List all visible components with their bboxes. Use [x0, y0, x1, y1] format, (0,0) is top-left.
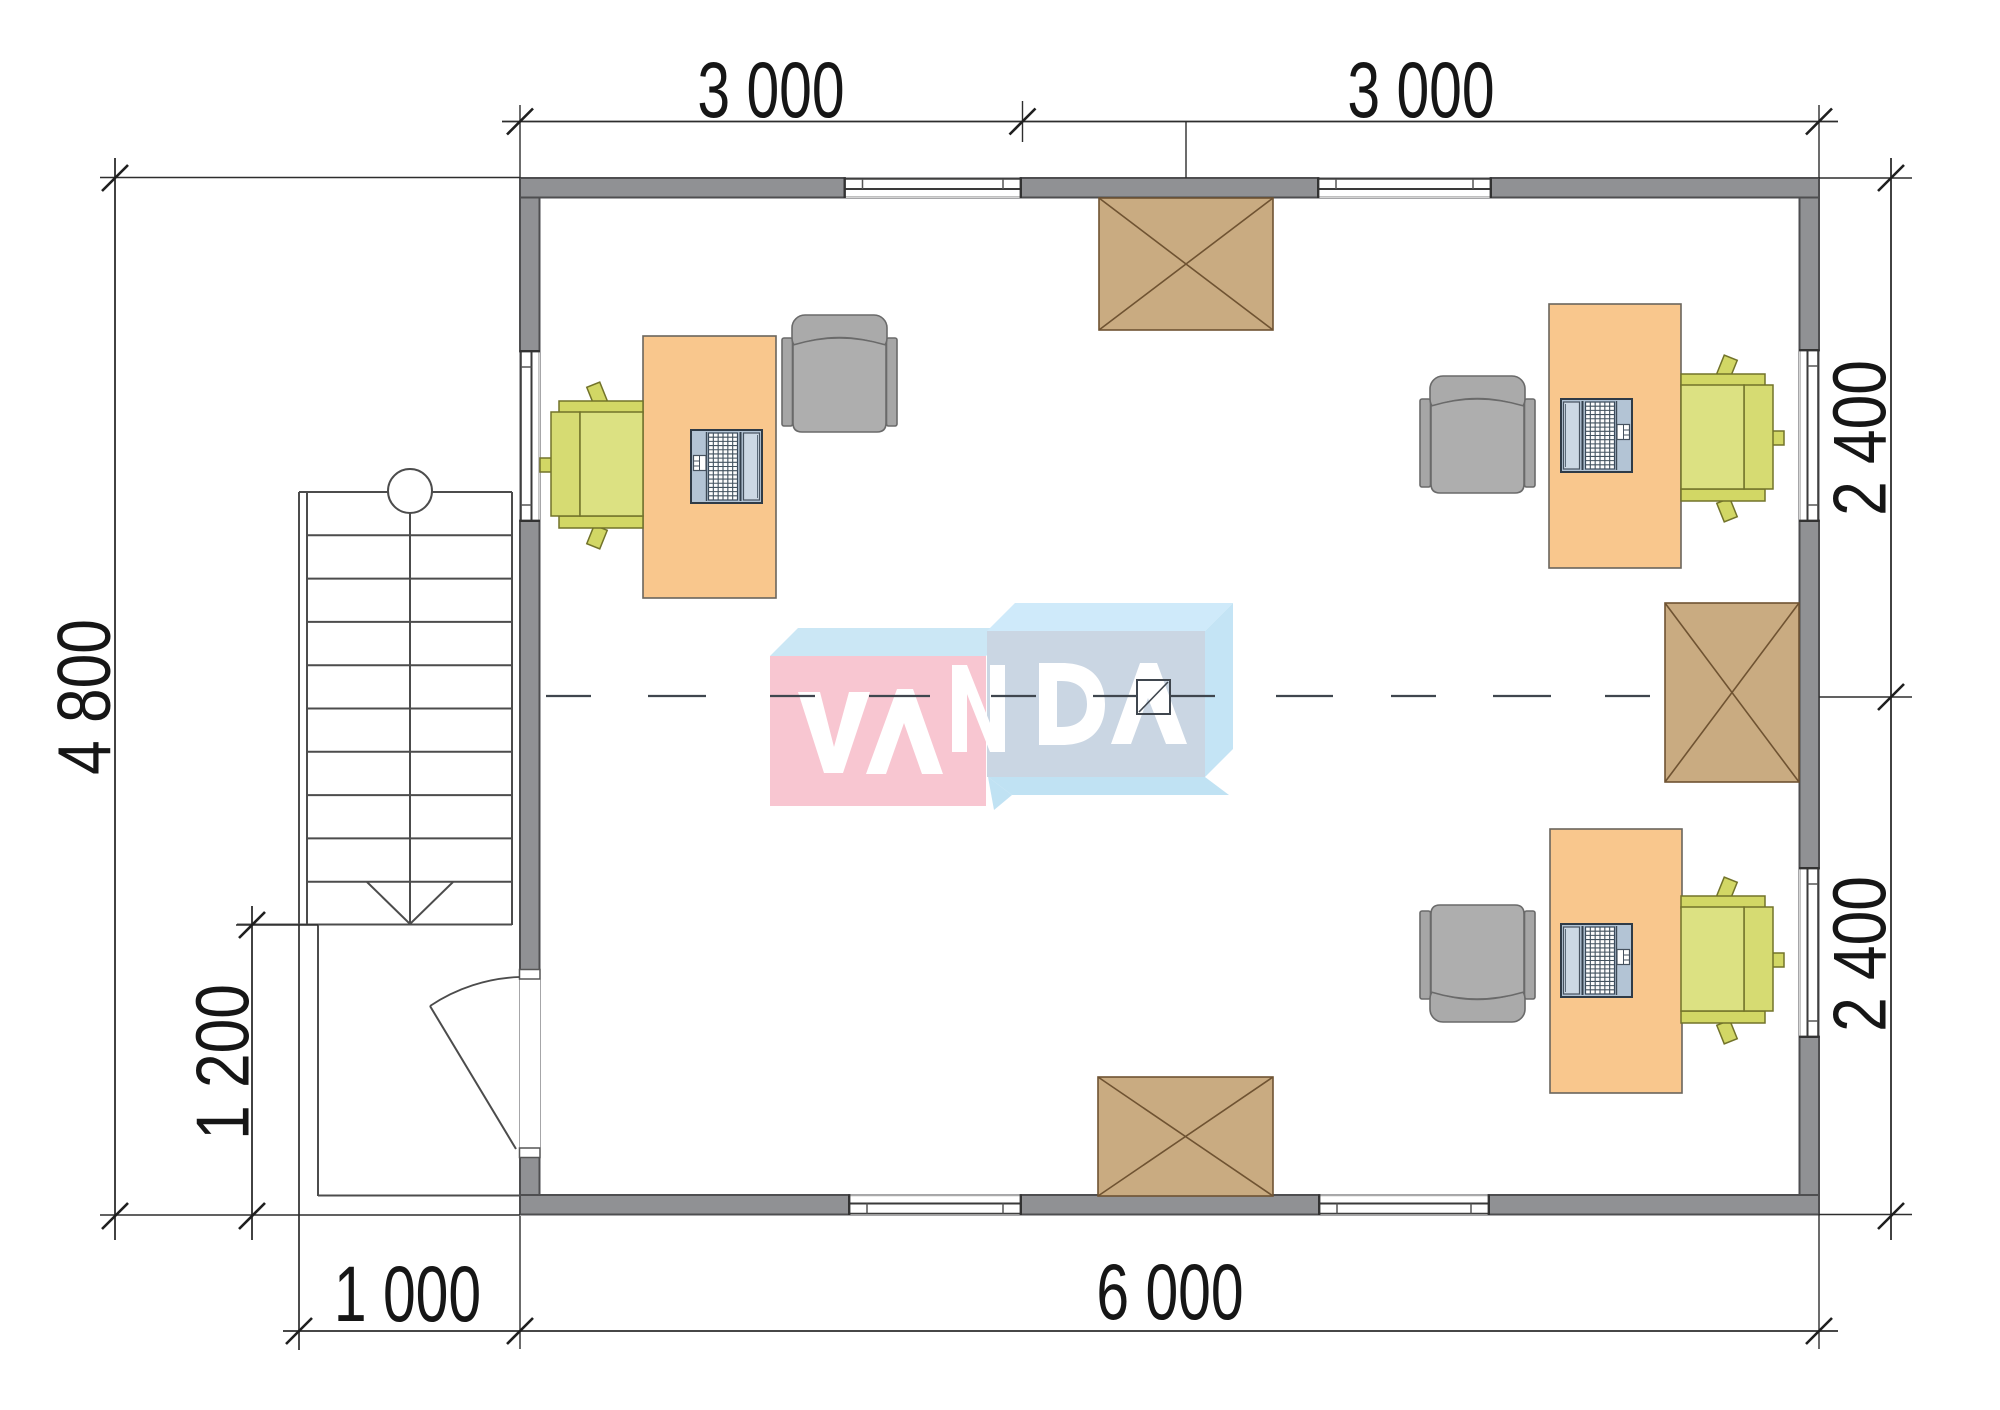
svg-text:3 000: 3 000: [697, 46, 844, 134]
svg-text:3 000: 3 000: [1347, 46, 1494, 134]
svg-text:1 000: 1 000: [334, 1250, 481, 1338]
svg-text:2 400: 2 400: [1818, 876, 1902, 1032]
svg-text:4 800: 4 800: [43, 619, 127, 775]
svg-text:6 000: 6 000: [1096, 1248, 1243, 1336]
svg-text:1 200: 1 200: [181, 984, 265, 1140]
svg-text:2 400: 2 400: [1818, 360, 1902, 516]
